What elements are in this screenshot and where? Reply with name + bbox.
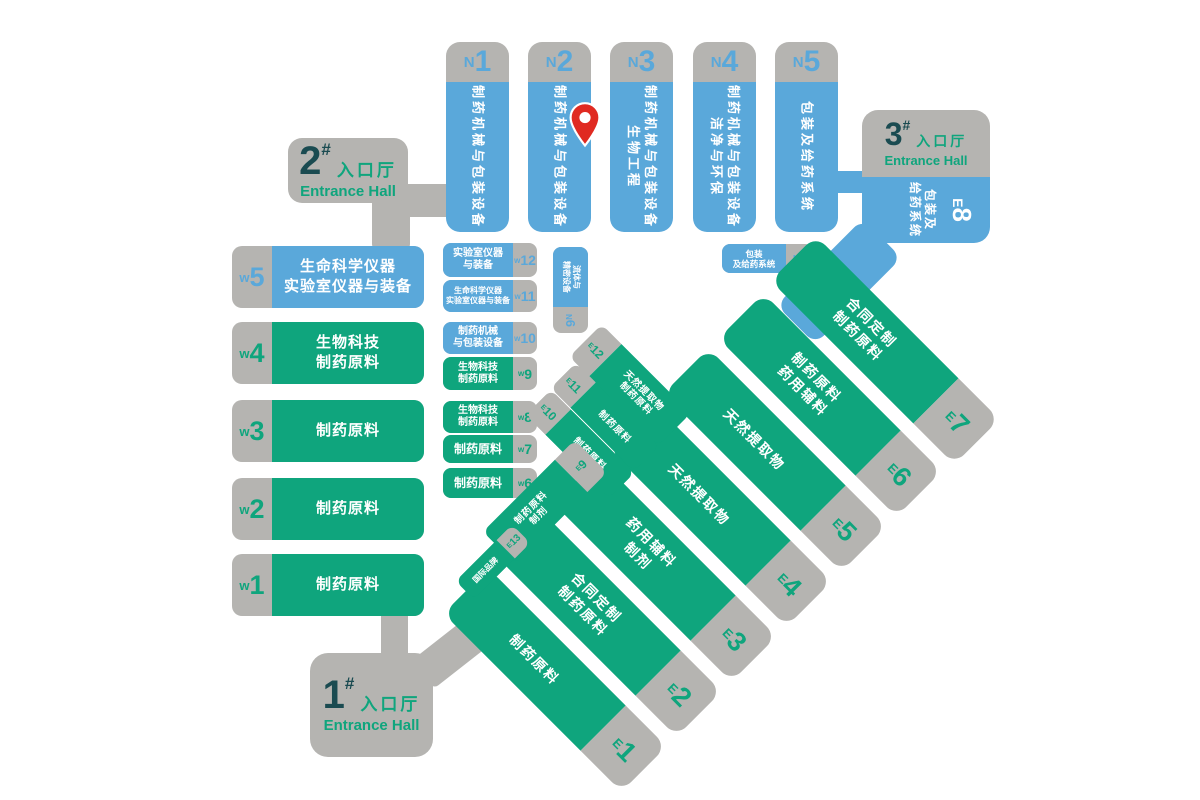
hall-n3-body: 制药机械与包装设备 生物工程 bbox=[610, 82, 673, 232]
hall-n6[interactable]: 流体与 精密设备 N6 bbox=[553, 247, 588, 333]
hall-w9-body: 生物科技 制药原料 bbox=[443, 357, 513, 390]
hall-w1[interactable]: w1 制药原料 bbox=[232, 554, 424, 616]
hall-n1-category: 制药机械与包装设备 bbox=[469, 82, 486, 232]
hall-w3-body: 制药原料 bbox=[272, 400, 424, 462]
hall-n4[interactable]: N4 制药机械与包装设备 洁净与环保 bbox=[693, 42, 756, 232]
hall-w8-body: 生物科技 制药原料 bbox=[443, 401, 513, 433]
entrance-3-label-zh: 入口厅 bbox=[916, 131, 967, 151]
entrance-hall-1[interactable]: 1#入口厅 Entrance Hall bbox=[310, 653, 433, 757]
hall-n5-label: N5 bbox=[775, 42, 838, 82]
entrance-1-label-en: Entrance Hall bbox=[324, 717, 420, 734]
hall-n1-body: 制药机械与包装设备 bbox=[446, 82, 509, 232]
hall-w5-label: w5 bbox=[232, 246, 272, 308]
hall-n3-label: N3 bbox=[610, 42, 673, 82]
hall-n1-number: 1 bbox=[475, 47, 492, 77]
hall-n5-category: 包装及给药系统 bbox=[798, 82, 815, 232]
hall-n3-number: 3 bbox=[639, 47, 656, 77]
hall-w1-body: 制药原料 bbox=[272, 554, 424, 616]
hall-n4-prefix: N bbox=[711, 54, 722, 71]
hall-n4-number: 4 bbox=[722, 47, 739, 77]
hall-n1-prefix: N bbox=[464, 54, 475, 71]
hall-w10-label: w10 bbox=[513, 322, 537, 354]
entrance-2-label-zh: 入口厅 bbox=[337, 156, 397, 181]
entrance-2-hash: # bbox=[321, 140, 330, 160]
hall-n5-prefix: N bbox=[793, 54, 804, 71]
hall-w3-label: w3 bbox=[232, 400, 272, 462]
hall-w4-body: 生物科技 制药原料 bbox=[272, 322, 424, 384]
hall-n2-number: 2 bbox=[557, 47, 574, 77]
entrance-1-hash: # bbox=[345, 674, 354, 694]
hall-w9[interactable]: 生物科技 制药原料 w9 bbox=[443, 357, 537, 390]
hall-w11[interactable]: 生命科学仪器 实验室仪器与装备 w11 bbox=[443, 280, 537, 312]
hall-n5-number: 5 bbox=[804, 47, 821, 77]
hall-n3-category: 制药机械与包装设备 生物工程 bbox=[625, 82, 659, 232]
hall-w12[interactable]: 实验室仪器 与装备 w12 bbox=[443, 243, 537, 277]
hall-w2-label: w2 bbox=[232, 478, 272, 540]
hall-w2-body: 制药原料 bbox=[272, 478, 424, 540]
hall-w10[interactable]: 制药机械 与包装设备 w10 bbox=[443, 322, 537, 354]
hall-n5[interactable]: N5 包装及给药系统 bbox=[775, 42, 838, 232]
hall-w7-label: w7 bbox=[513, 435, 537, 463]
hall-n4-body: 制药机械与包装设备 洁净与环保 bbox=[693, 82, 756, 232]
hall-w1-label: w1 bbox=[232, 554, 272, 616]
hall-n2-prefix: N bbox=[546, 54, 557, 71]
hall-w7[interactable]: 制药原料 w7 bbox=[443, 435, 537, 463]
entrance-1-label-zh: 入口厅 bbox=[360, 690, 420, 715]
hall-n3[interactable]: N3 制药机械与包装设备 生物工程 bbox=[610, 42, 673, 232]
hall-e8[interactable]: 包装及 给药系统 E8 bbox=[862, 177, 990, 243]
hall-w10-body: 制药机械 与包装设备 bbox=[443, 322, 513, 354]
entrance-3-hash: # bbox=[903, 117, 911, 133]
hall-w2[interactable]: w2 制药原料 bbox=[232, 478, 424, 540]
hall-w11-body: 生命科学仪器 实验室仪器与装备 bbox=[443, 280, 513, 312]
hall-n1[interactable]: N1 制药机械与包装设备 bbox=[446, 42, 509, 232]
hall-n7-body: 包装 及给药系统 bbox=[722, 244, 786, 273]
hall-w5-body: 生命科学仪器 实验室仪器与装备 bbox=[272, 246, 424, 308]
hall-e8-category: 包装及 给药系统 bbox=[907, 178, 937, 242]
hall-w6-body: 制药原料 bbox=[443, 468, 513, 498]
hall-w11-label: w11 bbox=[513, 280, 537, 312]
hall-n1-label: N1 bbox=[446, 42, 509, 82]
entrance-hall-2[interactable]: 2#入口厅 Entrance Hall bbox=[288, 138, 408, 203]
entrance-3-label-en: Entrance Hall bbox=[884, 153, 967, 168]
hall-n2-category: 制药机械与包装设备 bbox=[551, 82, 568, 232]
hall-n6-label: N6 bbox=[553, 307, 588, 333]
hall-n4-category: 制药机械与包装设备 洁净与环保 bbox=[708, 82, 742, 232]
hall-n5-body: 包装及给药系统 bbox=[775, 82, 838, 232]
location-pin-icon[interactable] bbox=[569, 101, 601, 148]
hall-w8[interactable]: 生物科技 制药原料 w8 bbox=[443, 401, 537, 433]
entrance-3-number: 3 bbox=[885, 119, 903, 149]
hall-w3[interactable]: w3 制药原料 bbox=[232, 400, 424, 462]
hall-w7-body: 制药原料 bbox=[443, 435, 513, 463]
hall-e8-label: E8 bbox=[949, 198, 975, 222]
hall-n6-category: 流体与 精密设备 bbox=[561, 249, 581, 305]
hall-n6-body: 流体与 精密设备 bbox=[553, 247, 588, 307]
connector-entrance2-w5 bbox=[372, 198, 410, 250]
hall-w9-label: w9 bbox=[513, 357, 537, 390]
exhibition-floor-map: N1 制药机械与包装设备 N2 制药机械与包装设备 N3 制药机械与包装设备 生… bbox=[0, 0, 1200, 800]
hall-n2-label: N2 bbox=[528, 42, 591, 82]
entrance-hall-3[interactable]: 3#入口厅 Entrance Hall bbox=[862, 110, 990, 177]
entrance-2-number: 2 bbox=[299, 142, 321, 180]
hall-n3-prefix: N bbox=[628, 54, 639, 71]
hall-n4-label: N4 bbox=[693, 42, 756, 82]
hall-w12-label: w12 bbox=[513, 243, 537, 277]
hall-w4[interactable]: w4 生物科技 制药原料 bbox=[232, 322, 424, 384]
hall-w4-label: w4 bbox=[232, 322, 272, 384]
hall-w12-body: 实验室仪器 与装备 bbox=[443, 243, 513, 277]
hall-w5[interactable]: w5 生命科学仪器 实验室仪器与装备 bbox=[232, 246, 424, 308]
entrance-2-label-en: Entrance Hall bbox=[300, 183, 396, 200]
connector-w1-entrance1 bbox=[381, 612, 408, 657]
entrance-1-number: 1 bbox=[323, 676, 345, 714]
